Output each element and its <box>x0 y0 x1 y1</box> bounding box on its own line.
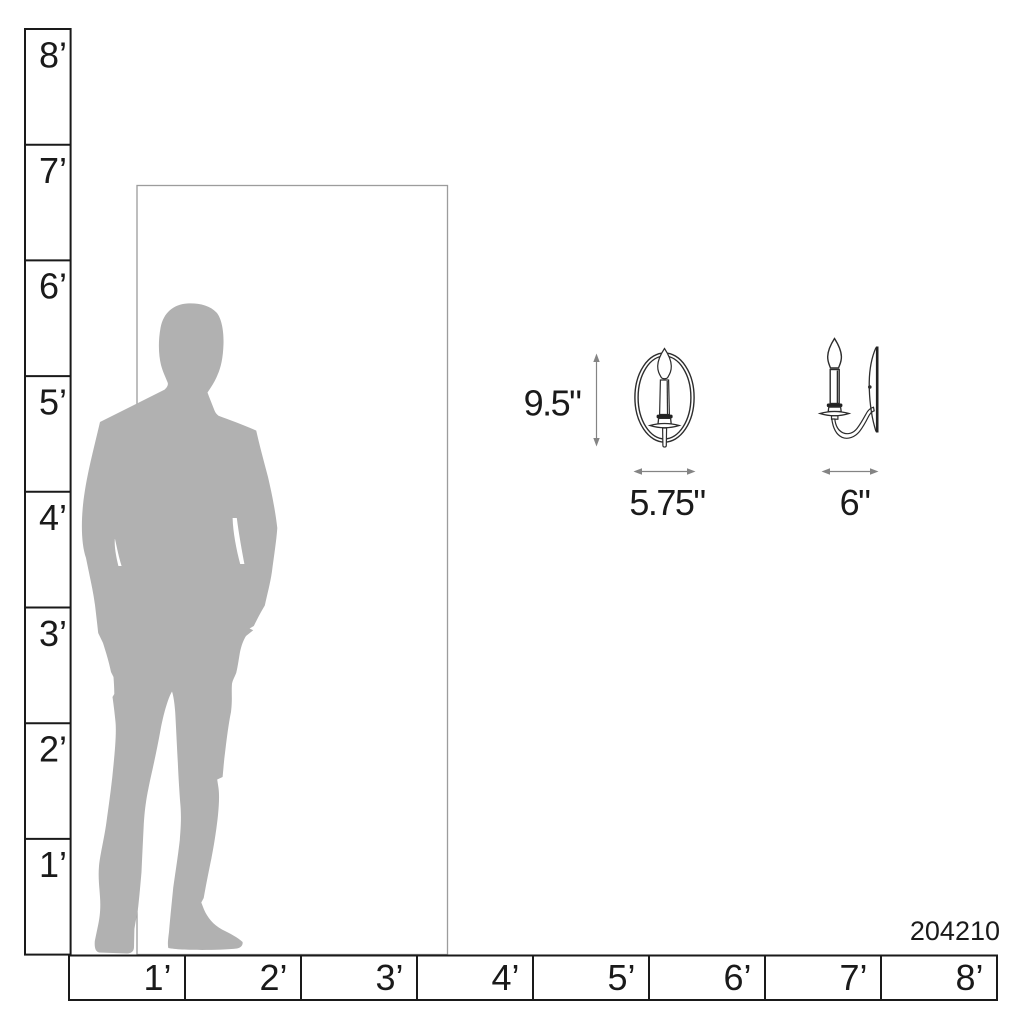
svg-text:5’: 5’ <box>607 957 635 998</box>
svg-text:1’: 1’ <box>143 957 171 998</box>
svg-text:6’: 6’ <box>723 957 751 998</box>
svg-text:7’: 7’ <box>39 150 67 191</box>
svg-text:3’: 3’ <box>375 957 403 998</box>
svg-text:6": 6" <box>840 482 871 523</box>
svg-text:4’: 4’ <box>491 957 519 998</box>
svg-text:5’: 5’ <box>39 381 67 422</box>
svg-text:3’: 3’ <box>39 613 67 654</box>
svg-text:204210: 204210 <box>910 916 1000 946</box>
svg-text:2’: 2’ <box>259 957 287 998</box>
svg-text:2’: 2’ <box>39 729 67 770</box>
svg-text:9.5": 9.5" <box>524 383 582 424</box>
svg-text:6’: 6’ <box>39 266 67 307</box>
svg-text:1’: 1’ <box>39 844 67 885</box>
svg-text:5.75": 5.75" <box>629 482 705 523</box>
svg-text:8’: 8’ <box>955 957 983 998</box>
svg-text:8’: 8’ <box>39 35 67 76</box>
svg-text:4’: 4’ <box>39 497 67 538</box>
svg-text:7’: 7’ <box>839 957 867 998</box>
